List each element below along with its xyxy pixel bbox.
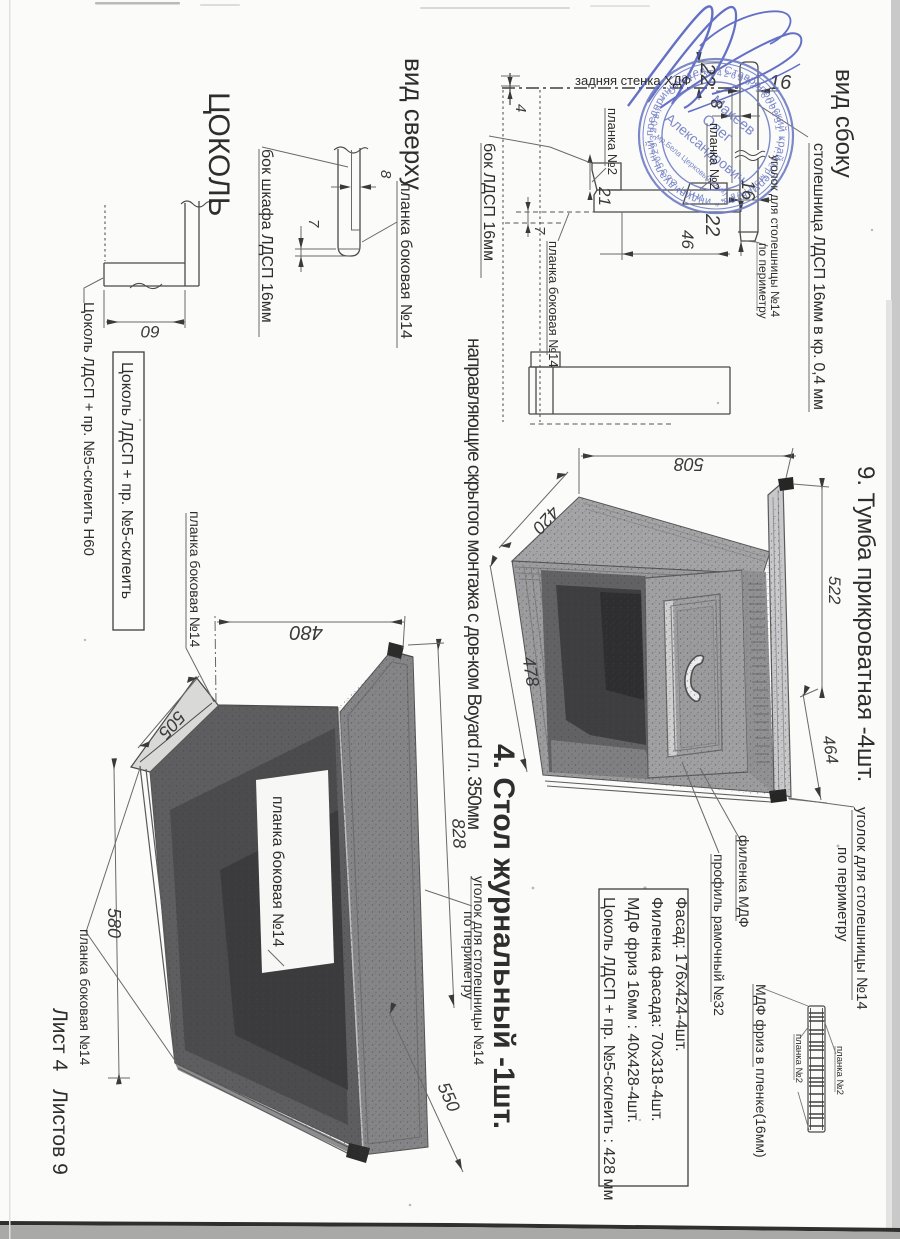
svg-text:по периметру: по периметру xyxy=(756,243,770,319)
svg-text:16: 16 xyxy=(738,180,758,201)
svg-text:МДФ фриз в пленке(16мм): МДФ фриз в пленке(16мм) xyxy=(753,984,769,1158)
svg-text:планка №2: планка №2 xyxy=(707,123,722,190)
svg-text:уголок для столешницы №14: уголок для столешницы №14 xyxy=(853,807,870,1010)
svg-text:4. Стол журнальный -1шт.: 4. Стол журнальный -1шт. xyxy=(487,744,520,1129)
svg-text:8: 8 xyxy=(707,99,726,109)
svg-text:бок ЛДСП 16мм: бок ЛДСП 16мм xyxy=(480,143,497,261)
svg-text:планка боковая №14: планка боковая №14 xyxy=(546,241,561,368)
svg-text:Фасад: 176х424-4шт.: Фасад: 176х424-4шт. xyxy=(672,897,689,1052)
svg-text:планка боковая №14: планка боковая №14 xyxy=(269,796,286,947)
svg-text:планка боковая №14: планка боковая №14 xyxy=(187,511,203,648)
svg-text:Цоколь ЛДСП + пр. №5-склеить: Цоколь ЛДСП + пр. №5-склеить Н60 xyxy=(80,302,97,556)
svg-text:планка №2: планка №2 xyxy=(793,1034,804,1083)
svg-text:Цоколь ЛДСП + пр. №5-склеить :: Цоколь ЛДСП + пр. №5-склеить : 428 мм xyxy=(600,897,617,1201)
svg-text:планка №2: планка №2 xyxy=(834,1046,845,1095)
svg-text:Листов 9: Листов 9 xyxy=(48,1089,71,1175)
svg-text:4: 4 xyxy=(512,104,529,112)
svg-text:планка №2: планка №2 xyxy=(605,108,620,175)
svg-text:планка боковая №14: планка боковая №14 xyxy=(397,183,414,339)
svg-text:7: 7 xyxy=(531,226,548,235)
svg-text:направляющие скрытого монтажа: направляющие скрытого монтажа с дов-ком … xyxy=(463,338,484,830)
svg-text:Филенка фасада: 70х318-4шт.: Филенка фасада: 70х318-4шт. xyxy=(648,897,665,1122)
svg-text:Цоколь ЛДСП + пр. №5-склеить: Цоколь ЛДСП + пр. №5-склеить xyxy=(118,362,135,599)
svg-text:по периметру: по периметру xyxy=(834,847,851,942)
svg-text:7: 7 xyxy=(305,219,322,228)
svg-text:МДФ фриз 16мм : 40х428-4шт.: МДФ фриз 16мм : 40х428-4шт. xyxy=(624,897,641,1123)
svg-text:508: 508 xyxy=(674,454,704,474)
svg-text:9. Тумба прикроватная -4шт.: 9. Тумба прикроватная -4шт. xyxy=(852,466,879,782)
svg-text:по периметру: по периметру xyxy=(461,911,477,999)
svg-text:480: 480 xyxy=(290,621,323,643)
svg-text:столешница ЛДСП 16мм в кр. 0,4: столешница ЛДСП 16мм в кр. 0,4 мм xyxy=(810,143,827,410)
svg-text:22: 22 xyxy=(696,62,719,87)
svg-text:ЦОКОЛЬ: ЦОКОЛЬ xyxy=(202,92,235,216)
svg-text:вид сбоку: вид сбоку xyxy=(830,69,857,178)
svg-text:21: 21 xyxy=(595,186,614,206)
svg-text:задняя стенка ХДФ: задняя стенка ХДФ xyxy=(575,73,691,88)
svg-text:филенка МДФ: филенка МДФ xyxy=(736,835,752,928)
svg-text:планка боковая №14: планка боковая №14 xyxy=(77,929,93,1066)
svg-text:вид сверху: вид сверху xyxy=(399,58,429,190)
svg-text:8: 8 xyxy=(377,170,394,179)
svg-text:46: 46 xyxy=(678,230,697,249)
svg-text:профиль рамочный №32: профиль рамочный №32 xyxy=(711,854,727,1016)
svg-text:Лист 4: Лист 4 xyxy=(48,1008,71,1071)
svg-text:580: 580 xyxy=(104,908,124,938)
svg-text:22: 22 xyxy=(701,213,723,236)
svg-text:60: 60 xyxy=(141,322,160,341)
svg-text:522: 522 xyxy=(825,576,844,605)
svg-text:бок шкафа ЛДСП 16мм: бок шкафа ЛДСП 16мм xyxy=(258,149,275,323)
